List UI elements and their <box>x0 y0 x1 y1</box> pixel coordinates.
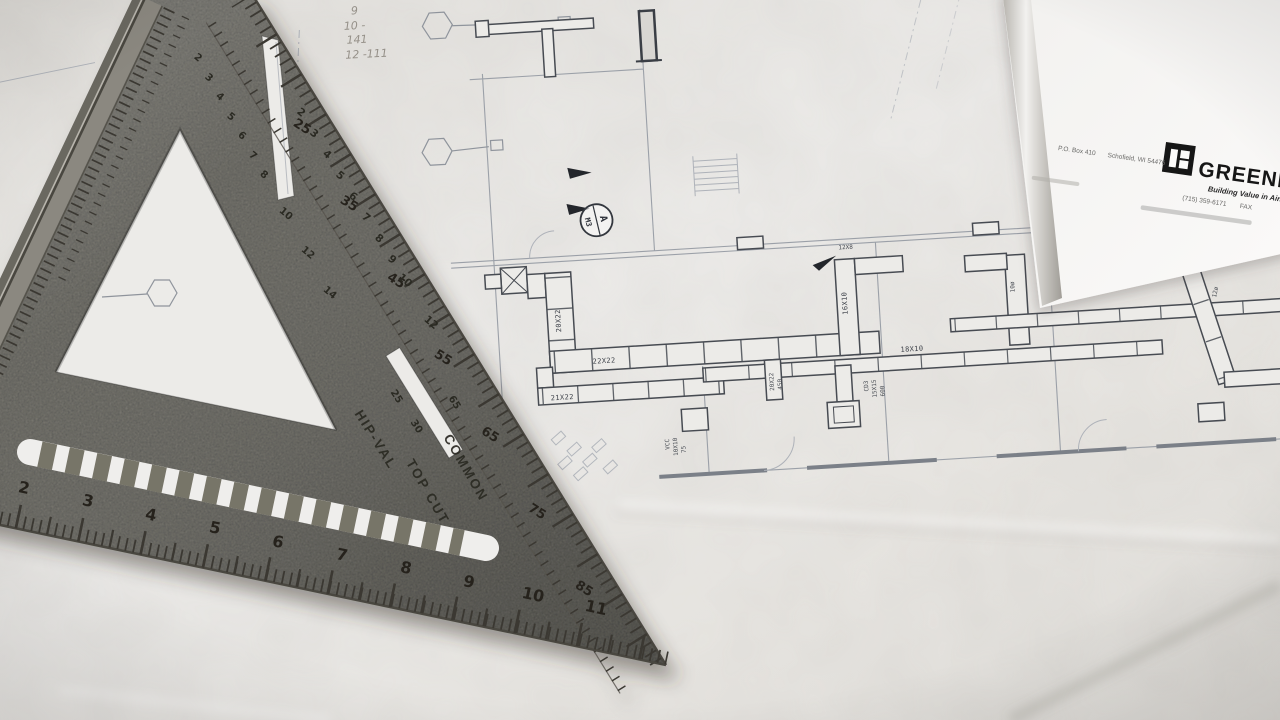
photo-of-blueprints-and-speed-square: A M3 22X22 21X22 20X22 18X10 16X10 CD3 1… <box>0 0 1280 720</box>
photo-vignette <box>0 0 1280 720</box>
scene: A M3 22X22 21X22 20X22 18X10 16X10 CD3 1… <box>0 0 1280 720</box>
